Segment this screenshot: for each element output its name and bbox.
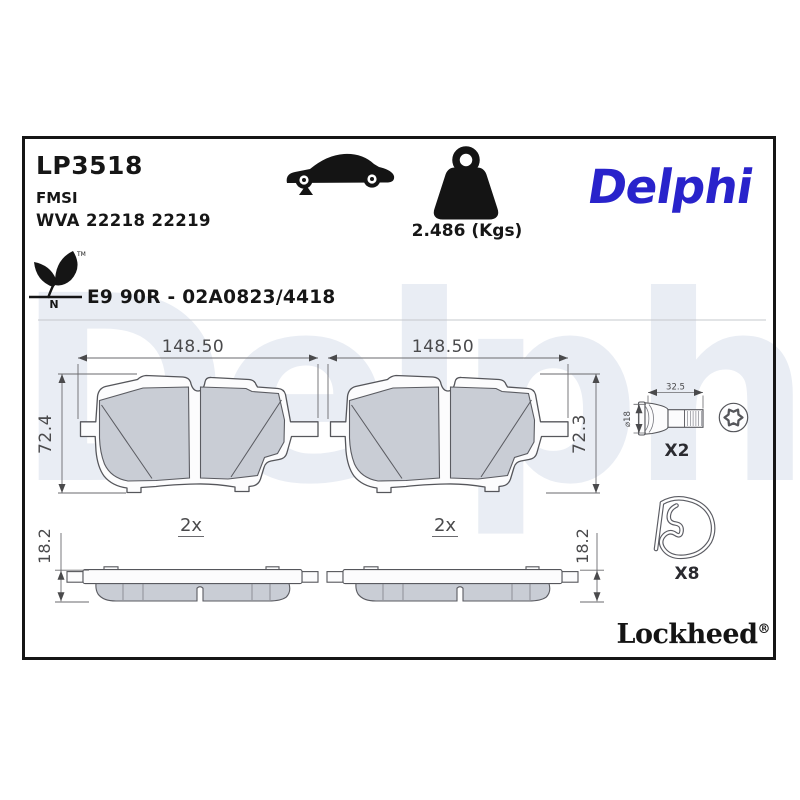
- pad-side-right-drawing: [327, 567, 578, 601]
- pad-front-left-drawing: [81, 376, 319, 493]
- delphi-logo-text: Delphi: [584, 160, 757, 215]
- lockheed-text: Lockheed: [616, 619, 757, 650]
- weight-icon: [426, 146, 506, 224]
- weight-value: 2.486 (Kgs): [406, 221, 528, 241]
- delphi-logo: Delphi: [588, 160, 752, 215]
- fmsi-label: FMSI: [36, 189, 78, 207]
- dim-height-left: 72.4: [36, 414, 56, 454]
- bolt-diameter-dim: ⌀18: [623, 411, 633, 427]
- approval-code: E9 90R - 02A0823/4418: [87, 287, 336, 308]
- eco-n-label: N: [49, 298, 58, 311]
- dim-width-left: 148.50: [162, 337, 224, 357]
- leaf-icon: N TM: [28, 247, 86, 311]
- clip-drawing: [656, 498, 713, 557]
- dim-thickness-right: 18.2: [573, 528, 592, 564]
- bolt-qty: X2: [665, 441, 690, 461]
- pad-front-right-drawing: [331, 376, 569, 493]
- part-number: LP3518: [36, 151, 143, 180]
- qty-front-left: 2x: [180, 515, 202, 536]
- car-icon: [284, 143, 396, 197]
- qty-front-right: 2x: [434, 515, 456, 536]
- pad-side-left-drawing: [67, 567, 318, 601]
- wva-numbers: WVA 22218 22219: [36, 211, 211, 230]
- dim-width-right: 148.50: [412, 337, 474, 357]
- trademark-label: TM: [76, 251, 86, 258]
- brake-pad-datasheet: Delphi LP3518 FMSI WVA 22218 22219 2.486…: [0, 0, 800, 800]
- bolt-drawing: 32.5 ⌀18 X2: [623, 383, 748, 462]
- technical-drawings: 148.50 148.50 72.4 72.3 2x 2x: [0, 0, 800, 800]
- bolt-length-dim: 32.5: [666, 383, 685, 393]
- dim-thickness-left: 18.2: [35, 528, 54, 564]
- clip-qty: X8: [675, 564, 700, 584]
- dim-height-right: 72.3: [570, 414, 590, 454]
- lockheed-logo: Lockheed®: [600, 619, 770, 650]
- registered-mark: ®: [758, 622, 771, 637]
